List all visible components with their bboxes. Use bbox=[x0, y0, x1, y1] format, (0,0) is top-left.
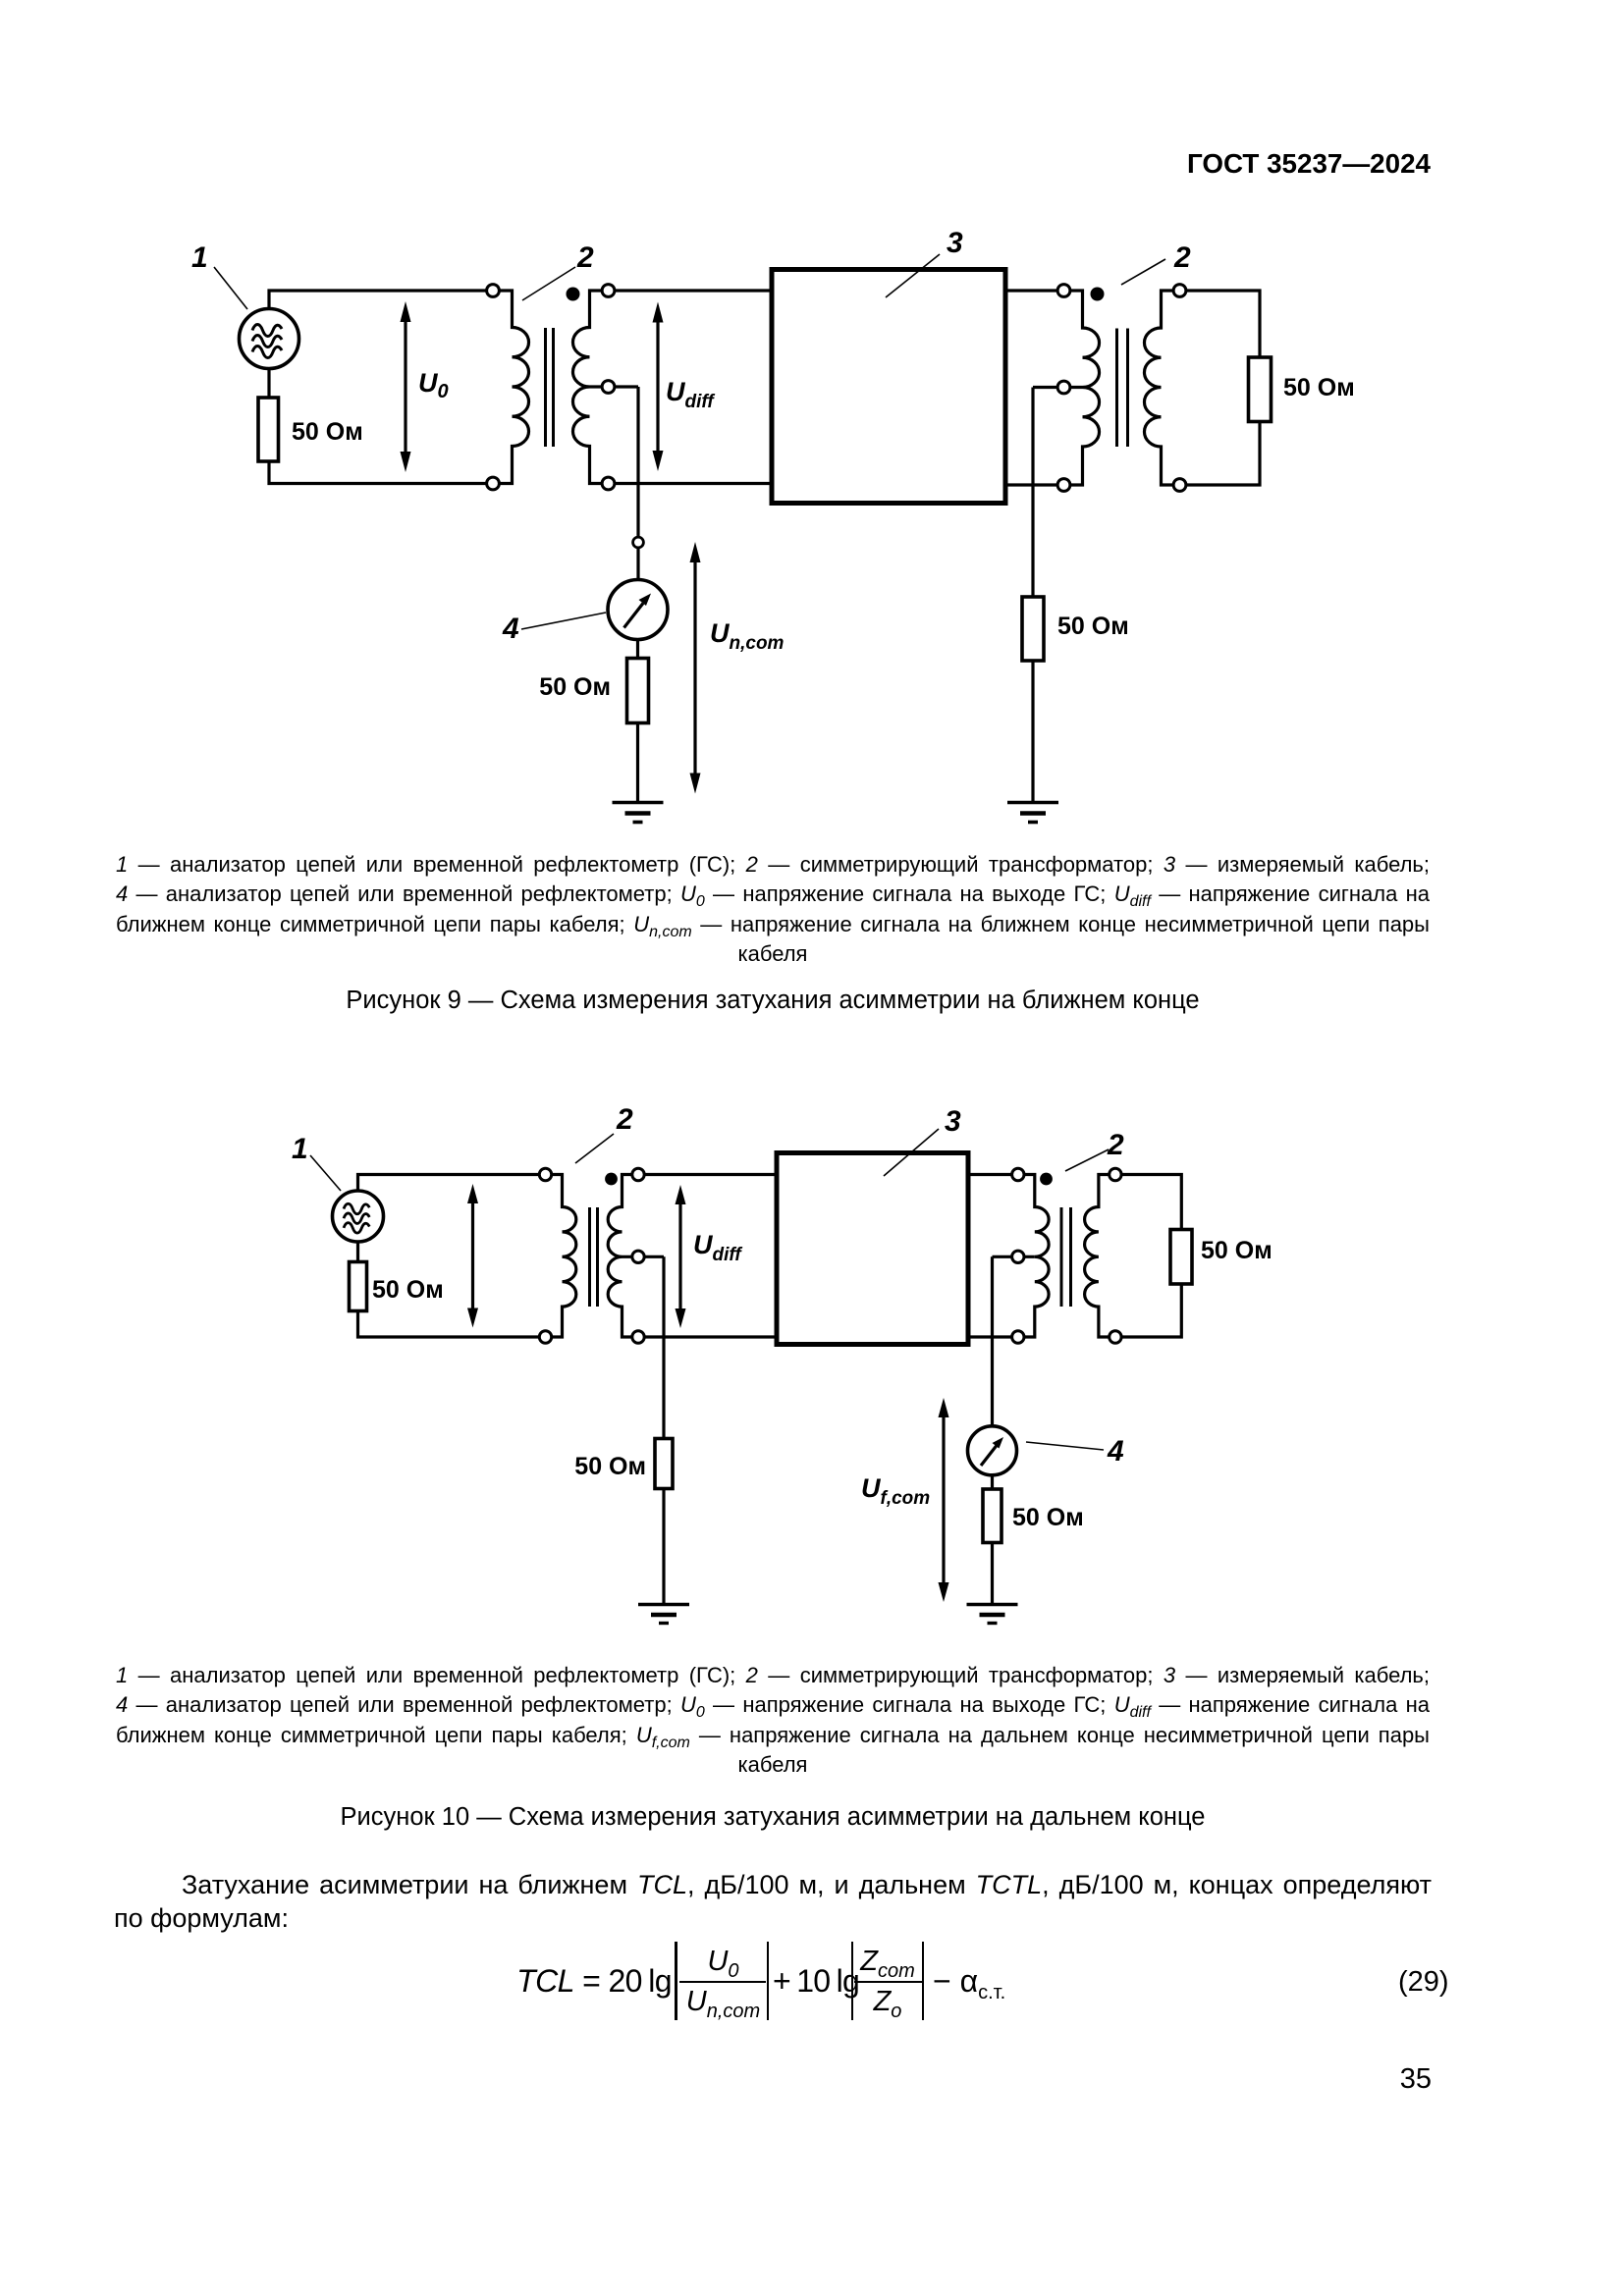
svg-text:4: 4 bbox=[502, 613, 519, 645]
svg-text:1: 1 bbox=[191, 241, 208, 274]
svg-text:3: 3 bbox=[947, 227, 963, 259]
svg-text:50 Ом: 50 Ом bbox=[372, 1276, 444, 1304]
svg-text:U0: U0 bbox=[418, 368, 449, 402]
svg-text:1: 1 bbox=[292, 1133, 308, 1165]
svg-text:2: 2 bbox=[616, 1103, 633, 1136]
svg-text:50 Ом: 50 Ом bbox=[1012, 1504, 1084, 1531]
svg-text:2: 2 bbox=[1173, 241, 1191, 274]
svg-text:Uf,com: Uf,com bbox=[861, 1473, 930, 1509]
svg-text:50 Ом: 50 Ом bbox=[574, 1453, 646, 1480]
svg-text:Udiff: Udiff bbox=[666, 377, 715, 412]
svg-text:4: 4 bbox=[1107, 1435, 1124, 1468]
svg-text:50 Ом: 50 Ом bbox=[539, 673, 611, 701]
svg-text:50 Ом: 50 Ом bbox=[1283, 374, 1355, 401]
svg-text:50 Ом: 50 Ом bbox=[1201, 1237, 1272, 1264]
svg-text:3: 3 bbox=[945, 1105, 961, 1138]
svg-text:Un,com: Un,com bbox=[710, 618, 785, 654]
svg-text:50 Ом: 50 Ом bbox=[292, 418, 363, 446]
svg-text:2: 2 bbox=[1107, 1129, 1124, 1161]
svg-text:2: 2 bbox=[576, 241, 594, 274]
svg-text:50 Ом: 50 Ом bbox=[1057, 613, 1129, 640]
svg-text:Udiff: Udiff bbox=[693, 1230, 742, 1265]
